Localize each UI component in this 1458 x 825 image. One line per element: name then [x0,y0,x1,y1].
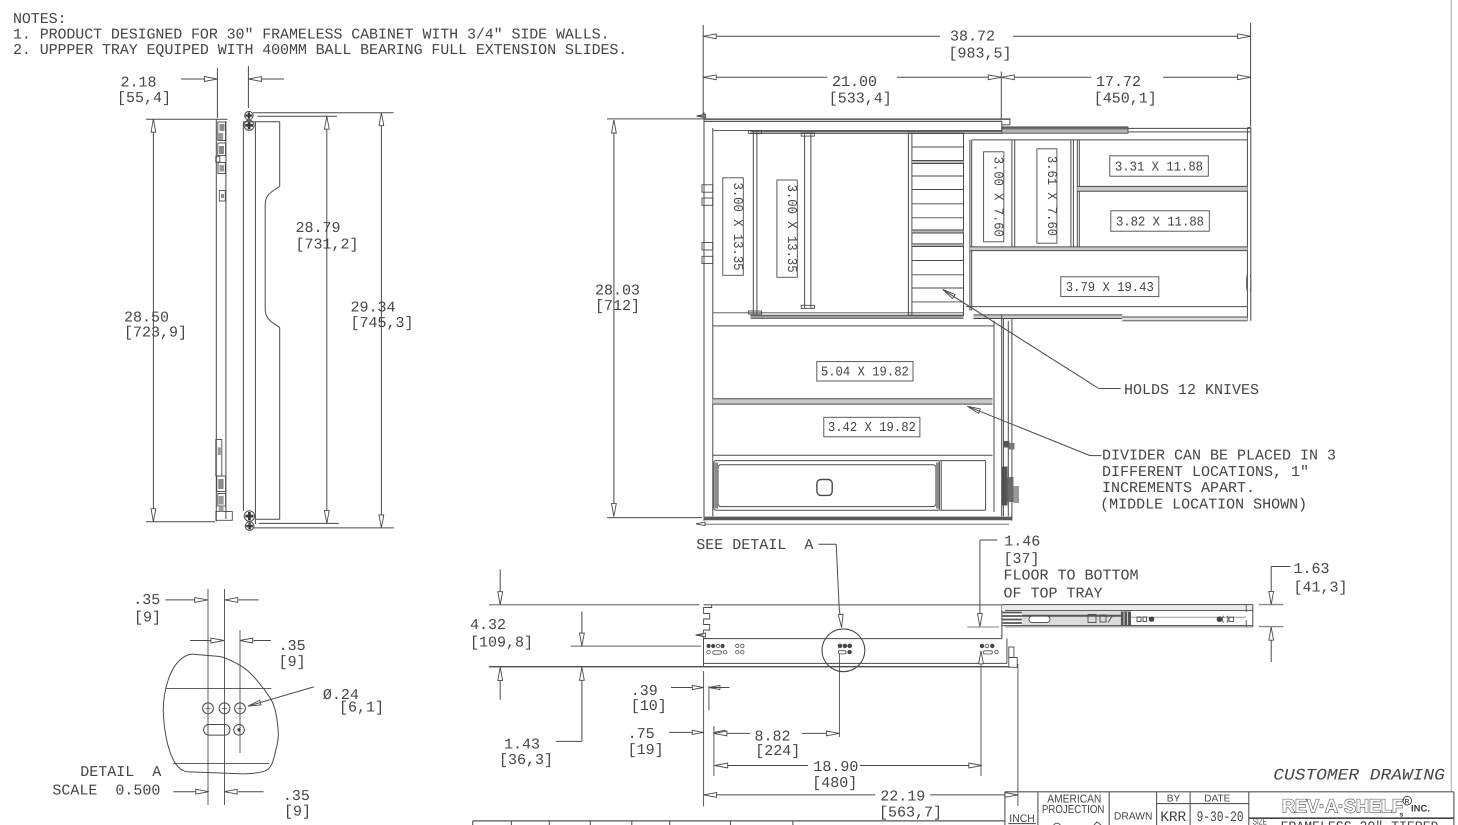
svg-text:[109,8]: [109,8] [470,634,533,651]
svg-text:1.43: 1.43 [504,736,540,753]
svg-text:9-30-20: 9-30-20 [1197,810,1244,825]
svg-text:18.90: 18.90 [813,759,858,776]
svg-text:[36,3]: [36,3] [499,752,553,769]
svg-text:INC.: INC. [1411,804,1430,815]
svg-text:[224]: [224] [755,743,800,760]
svg-text:HOLDS 12 KNIVES: HOLDS 12 KNIVES [1124,382,1259,399]
svg-text:29.34: 29.34 [351,300,396,317]
svg-text:3.31 X 11.88: 3.31 X 11.88 [1115,161,1203,176]
svg-text:[983,5]: [983,5] [949,46,1012,63]
svg-text:DETAIL A: DETAIL A [80,764,161,781]
svg-text:.75: .75 [628,726,655,743]
svg-text:[37]: [37] [1004,551,1040,568]
svg-text:OF TOP TRAY: OF TOP TRAY [1004,586,1103,603]
svg-text:NOTES:: NOTES: [13,11,66,28]
svg-text:1. PRODUCT DESIGNED FOR 30" FR: 1. PRODUCT DESIGNED FOR 30" FRAMELESS CA… [13,27,609,44]
svg-text:SIZE: SIZE [1253,816,1267,825]
svg-text:BY: BY [1167,793,1181,804]
svg-text:2. UPPPER TRAY EQUIPED WITH 40: 2. UPPPER TRAY EQUIPED WITH 400MM BALL B… [13,42,627,59]
svg-text:3.61 X 7.60: 3.61 X 7.60 [1043,156,1058,236]
svg-text:17.72: 17.72 [1096,74,1141,91]
svg-text:[10]: [10] [631,698,667,715]
svg-text:SEE DETAIL A: SEE DETAIL A [696,537,813,554]
svg-text:.35: .35 [283,788,310,805]
svg-text:PROJECTION: PROJECTION [1042,804,1105,816]
svg-text:DATE: DATE [1204,793,1230,804]
svg-text:SCALE 0.500: SCALE 0.500 [52,783,160,800]
svg-text:INCREMENTS APART.: INCREMENTS APART. [1102,480,1255,497]
svg-text:3.82 X 11.88: 3.82 X 11.88 [1116,216,1204,231]
svg-text:DRAWN: DRAWN [1114,810,1153,822]
svg-text:3.42 X 19.82: 3.42 X 19.82 [828,421,916,436]
svg-text:5.04 X 19.82: 5.04 X 19.82 [821,366,909,381]
svg-text:[731,2]: [731,2] [296,237,359,254]
svg-text:[480]: [480] [812,775,857,792]
svg-text:[55,4]: [55,4] [117,90,171,107]
svg-text:(MIDDLE LOCATION SHOWN): (MIDDLE LOCATION SHOWN) [1100,497,1307,514]
svg-text:DIFFERENT LOCATIONS, 1": DIFFERENT LOCATIONS, 1" [1102,464,1309,481]
svg-text:2.18: 2.18 [121,75,157,92]
svg-text:CUSTOMER DRAWING: CUSTOMER DRAWING [1273,767,1445,785]
svg-text:REV·A·SHELF: REV·A·SHELF [1282,797,1403,818]
svg-text:[9]: [9] [279,654,306,671]
svg-text:1.46: 1.46 [1004,534,1040,551]
svg-text:38.72: 38.72 [950,29,995,46]
svg-text:[563,7]: [563,7] [879,805,942,822]
svg-text:[712]: [712] [595,298,640,315]
svg-text:[533,4]: [533,4] [829,90,892,107]
svg-text:3.00 X 13.35: 3.00 X 13.35 [729,183,744,271]
svg-text:[9]: [9] [134,609,161,626]
svg-text:[19]: [19] [628,742,664,759]
svg-text:28.03: 28.03 [595,282,640,299]
svg-text:s: s [1400,812,1404,819]
svg-text:21.00: 21.00 [832,74,877,91]
svg-text:KRR: KRR [1160,810,1186,825]
svg-text:28.79: 28.79 [296,220,341,237]
svg-text:22.19: 22.19 [880,789,925,806]
svg-text:.35: .35 [279,638,306,655]
svg-text:3.79 X 19.43: 3.79 X 19.43 [1066,281,1154,296]
svg-text:[450,1]: [450,1] [1094,91,1157,108]
svg-text:[6,1]: [6,1] [339,699,384,716]
svg-text:DIVIDER CAN BE PLACED IN 3: DIVIDER CAN BE PLACED IN 3 [1102,447,1336,464]
svg-text:.35: .35 [133,592,160,609]
svg-text:[41,3]: [41,3] [1294,580,1348,597]
svg-text:3.00 X 7.60: 3.00 X 7.60 [990,157,1005,237]
svg-text:3.00 X 13.35: 3.00 X 13.35 [783,185,798,273]
svg-text:FRAMELESS 30" TIERED: FRAMELESS 30" TIERED [1281,820,1439,825]
svg-text:R: R [1405,798,1410,805]
svg-text:[723,9]: [723,9] [124,325,187,342]
svg-text:INCH: INCH [1009,813,1035,825]
svg-text:[9]: [9] [284,803,311,820]
svg-text:[745,3]: [745,3] [351,315,414,332]
svg-text:1.63: 1.63 [1294,561,1330,578]
svg-text:FLOOR TO BOTTOM: FLOOR TO BOTTOM [1004,567,1139,584]
svg-text:4.32: 4.32 [470,617,506,634]
